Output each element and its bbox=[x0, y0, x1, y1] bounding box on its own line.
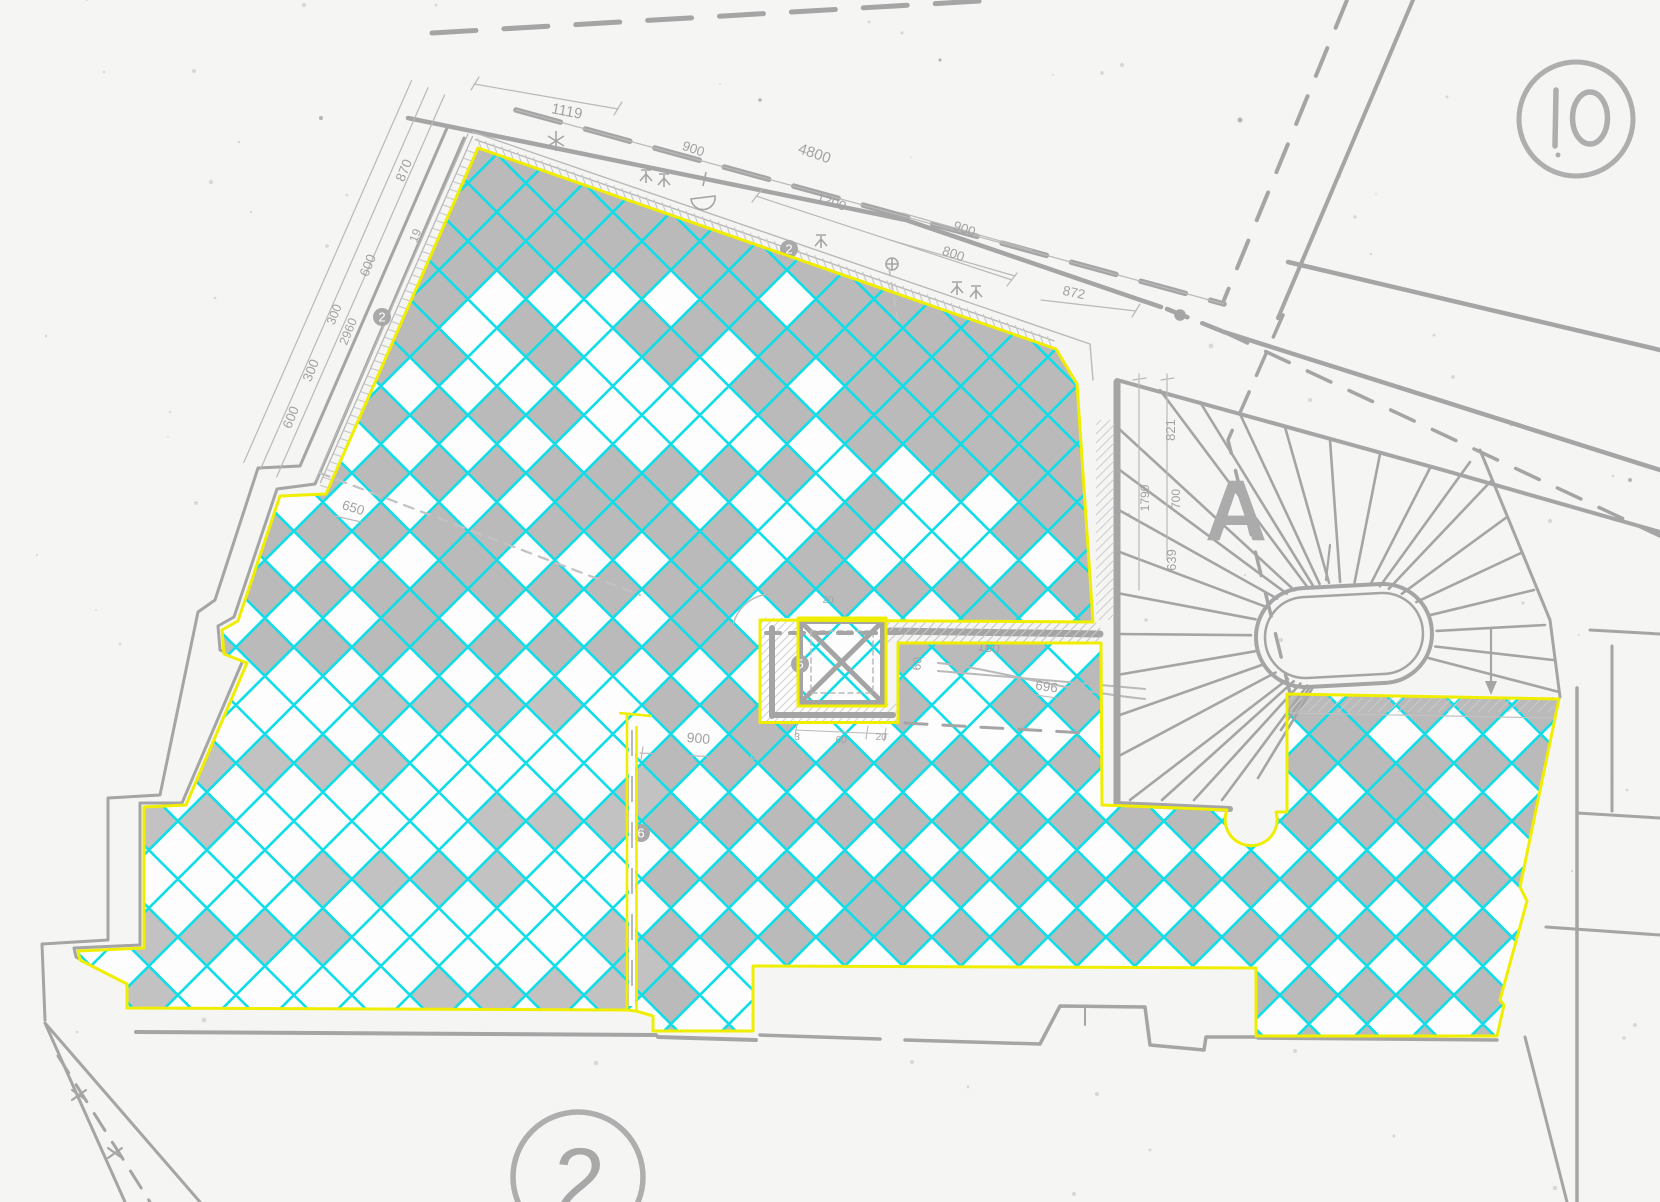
svg-text:160: 160 bbox=[976, 639, 1000, 657]
svg-text:2: 2 bbox=[378, 310, 385, 325]
svg-text:700: 700 bbox=[1169, 489, 1183, 509]
svg-text:696: 696 bbox=[1034, 678, 1058, 696]
svg-text:20: 20 bbox=[875, 732, 887, 744]
svg-text:6: 6 bbox=[637, 826, 644, 841]
svg-text:A: A bbox=[1205, 463, 1267, 559]
svg-text:900: 900 bbox=[686, 729, 711, 747]
svg-text:2: 2 bbox=[554, 1130, 605, 1202]
svg-text:60: 60 bbox=[909, 656, 924, 671]
svg-text:20: 20 bbox=[822, 595, 834, 607]
svg-text:3: 3 bbox=[794, 732, 801, 743]
svg-text:60: 60 bbox=[835, 735, 847, 747]
svg-text:639: 639 bbox=[1164, 549, 1179, 571]
svg-text:1790: 1790 bbox=[1138, 484, 1152, 511]
svg-text:821: 821 bbox=[1163, 419, 1178, 441]
